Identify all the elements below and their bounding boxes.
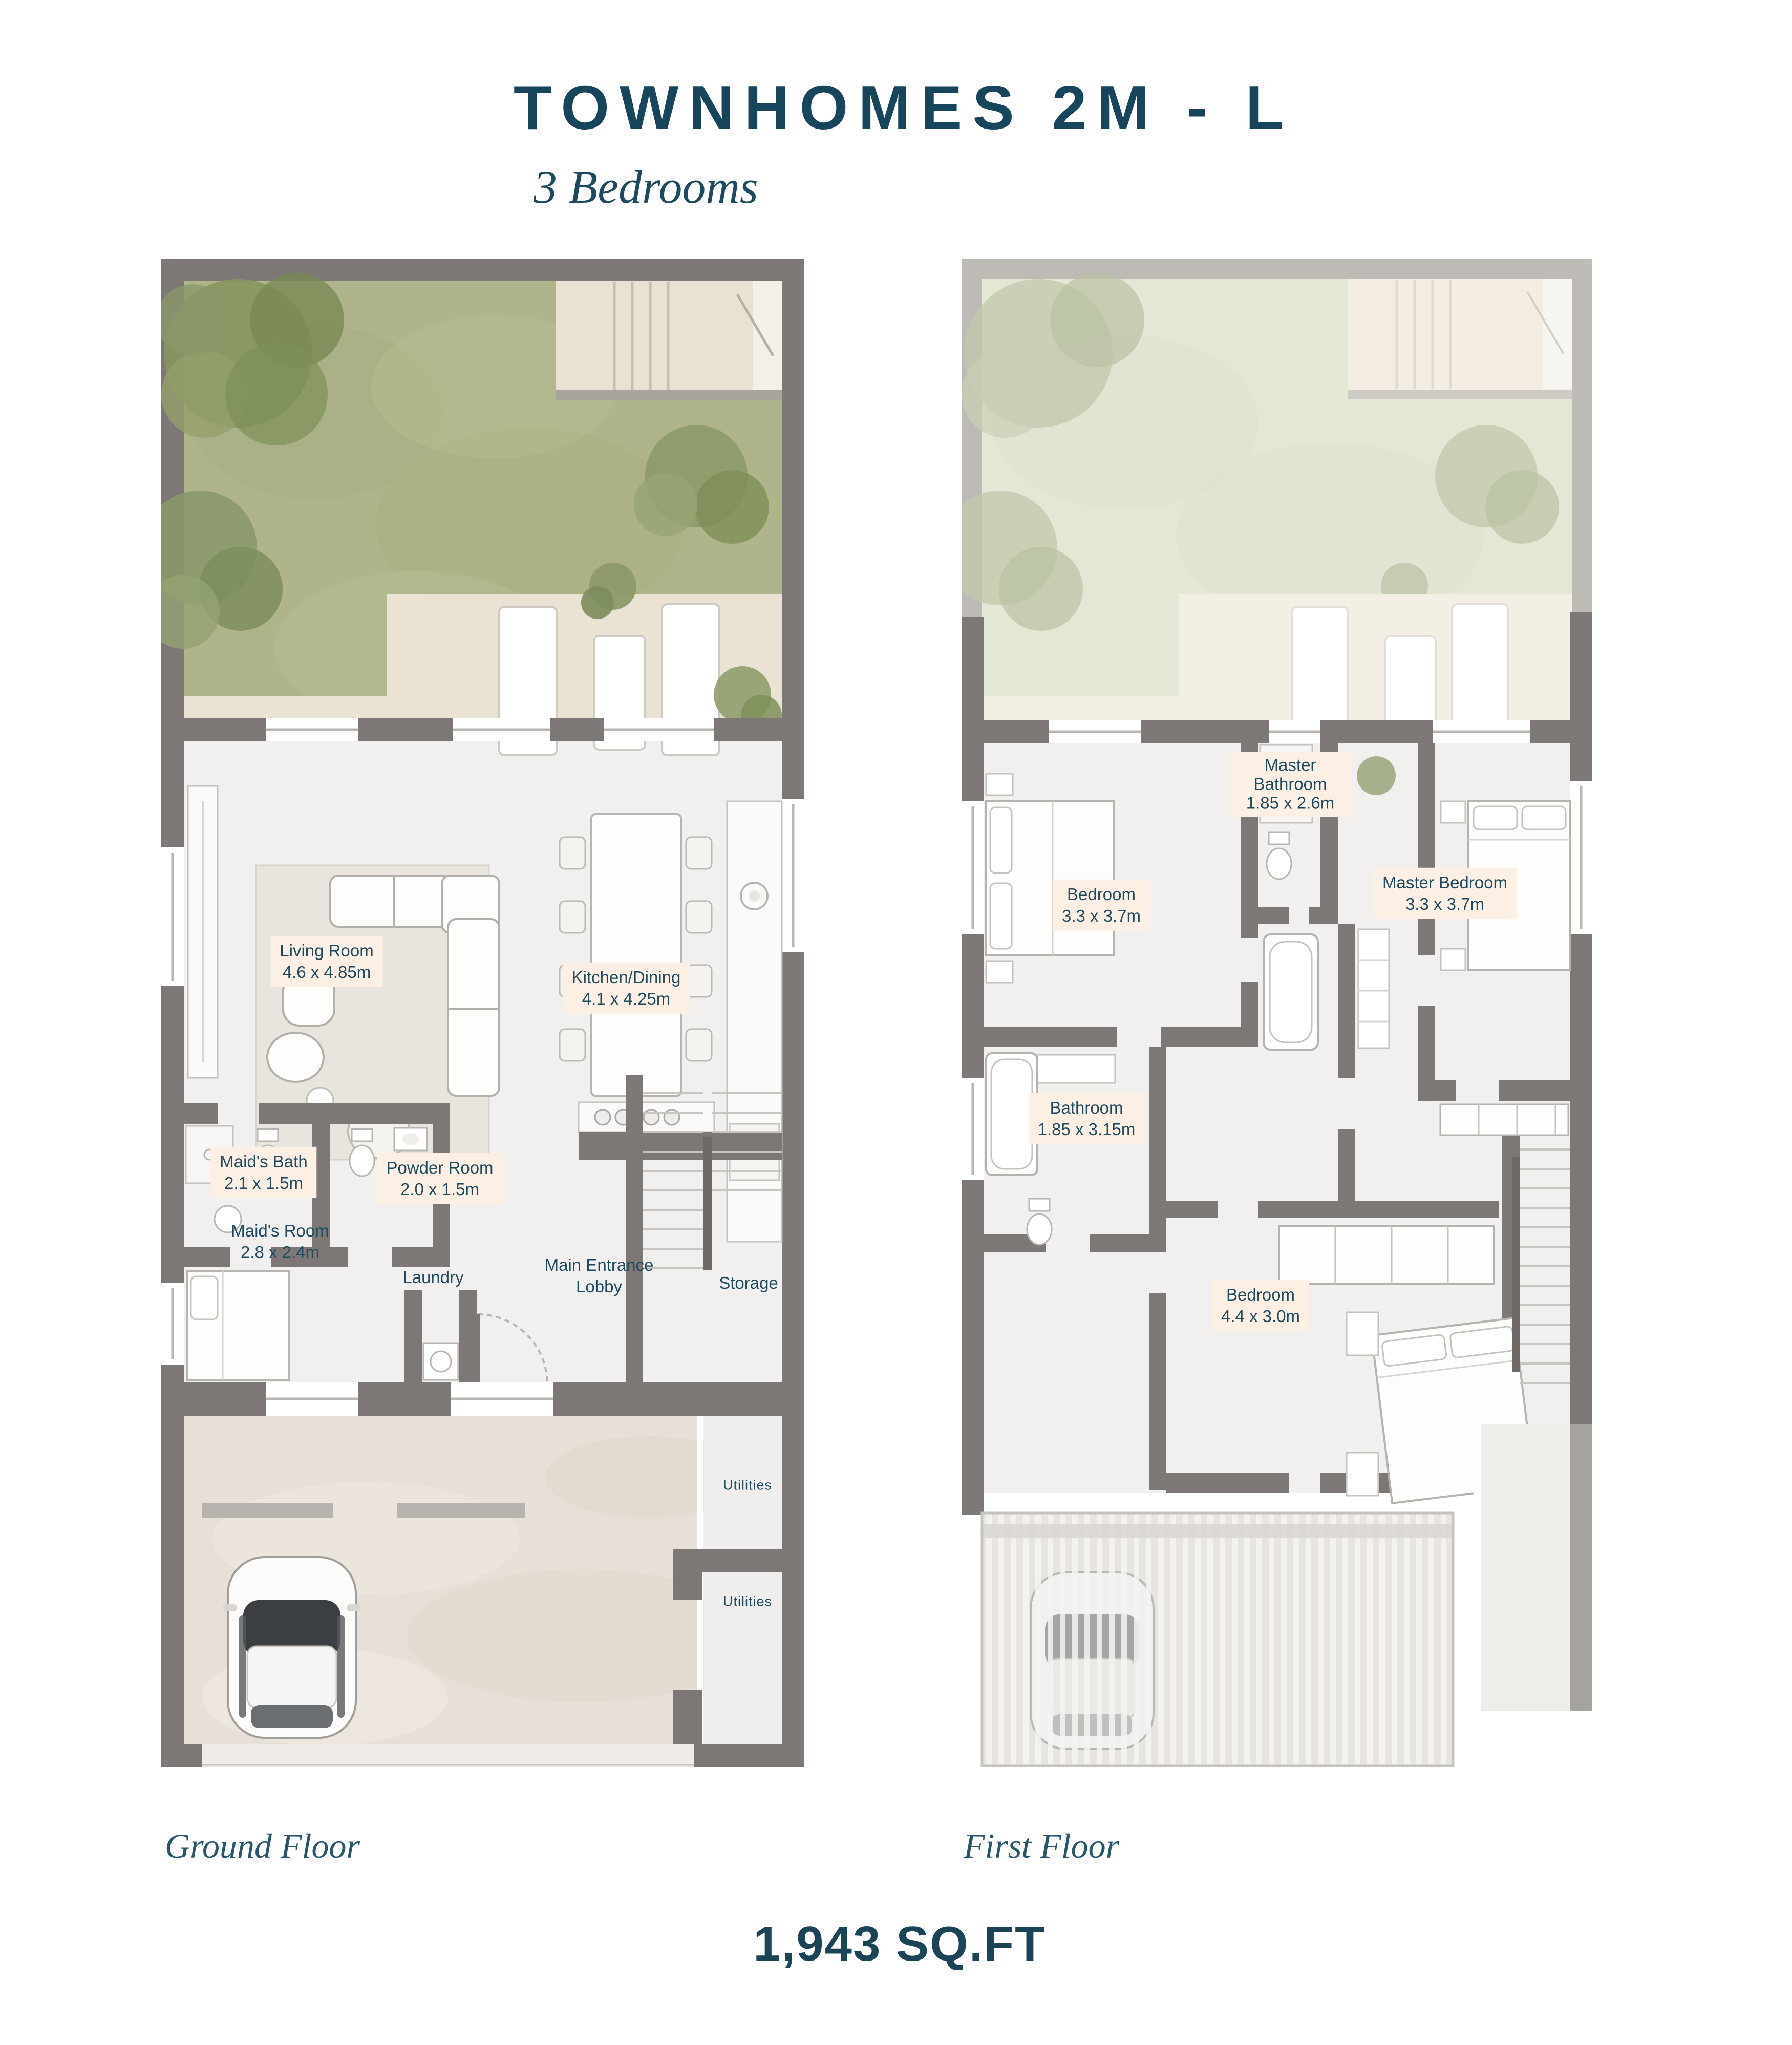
utilities-area — [703, 1416, 782, 1744]
gf-garage — [184, 1416, 782, 1767]
label-utilities-2: Utilities — [723, 1593, 772, 1611]
label-bedroom-2: Bedroom4.4 x 3.0m — [1212, 1280, 1309, 1331]
page-title: TOWNHOMES 2M - L — [514, 72, 1294, 143]
first-floor-caption: First Floor — [964, 1826, 1119, 1866]
toilet-icon — [350, 1145, 374, 1176]
label-laundry: Laundry — [402, 1267, 463, 1288]
label-master-bathroom: Master Bathroom 1.85 x 2.6m — [1230, 752, 1351, 817]
nightstand — [1347, 1312, 1378, 1355]
label-main-entrance-lobby: Main Entrance Lobby — [522, 1254, 676, 1297]
nightstand — [1441, 949, 1465, 970]
gf-garden-wall — [184, 718, 782, 741]
toilet-icon — [1267, 848, 1291, 879]
washing-machine-icon — [423, 1343, 458, 1380]
page-subtitle: 3 Bedrooms — [534, 160, 758, 214]
gf-maids-room-furniture — [187, 1271, 289, 1380]
car-icon — [223, 1557, 361, 1738]
ground-floor-caption: Ground Floor — [165, 1826, 360, 1866]
label-powder-room: Powder Room2.0 x 1.5m — [377, 1153, 502, 1204]
first-floor-drawing — [962, 259, 1592, 1767]
parking-stripe — [202, 1503, 333, 1518]
closet — [1358, 929, 1389, 1048]
gf-garage-wall — [184, 1382, 782, 1416]
dining-table — [591, 814, 681, 1096]
toilet-icon — [1027, 1214, 1052, 1245]
nightstand — [1441, 801, 1465, 823]
label-storage: Storage — [719, 1272, 778, 1294]
ff-roof-strip — [1481, 1424, 1570, 1711]
gf-garden — [161, 273, 782, 755]
label-maids-bath: Maid's Bath2.1 x 1.5m — [210, 1147, 316, 1198]
label-bedroom-1: Bedroom3.3 x 3.7m — [1053, 880, 1150, 931]
ground-floor-drawing — [161, 259, 804, 1767]
floorplan-page: TOWNHOMES 2M - L 3 Bedrooms — [0, 0, 1792, 2045]
stair-rail — [1512, 1157, 1520, 1372]
first-floor-plan — [962, 259, 1592, 1767]
ff-pergola — [982, 1513, 1453, 1766]
gf-entry-stairs — [556, 281, 782, 400]
bathtub-icon — [1264, 934, 1318, 1050]
label-kitchen-dining: Kitchen/Dining4.1 x 4.25m — [563, 963, 690, 1014]
stair-rail — [703, 1137, 712, 1270]
label-bathroom: Bathroom1.85 x 3.15m — [1029, 1093, 1145, 1144]
nightstand — [1347, 1453, 1378, 1496]
pouf — [267, 1033, 324, 1082]
plant-icon — [1357, 756, 1396, 795]
pillow — [191, 1276, 218, 1319]
label-living-room: Living Room4.6 x 4.85m — [270, 936, 382, 987]
wardrobe — [1279, 1226, 1494, 1284]
ff-garden-faded — [962, 259, 1592, 753]
dresser — [1028, 1055, 1115, 1083]
nightstand — [986, 774, 1013, 795]
total-area: 1,943 SQ.FT — [753, 1916, 1046, 1972]
label-maids-room: Maid's Room2.8 x 2.4m — [231, 1220, 329, 1263]
ground-floor-plan — [161, 259, 804, 1767]
ff-north-wall — [982, 720, 1572, 743]
wardrobe — [1440, 1104, 1568, 1135]
label-master-bedroom: Master Bedroom3.3 x 3.7m — [1373, 868, 1517, 919]
nightstand — [986, 961, 1013, 983]
label-utilities-1: Utilities — [723, 1477, 772, 1495]
parking-stripe — [397, 1503, 525, 1518]
